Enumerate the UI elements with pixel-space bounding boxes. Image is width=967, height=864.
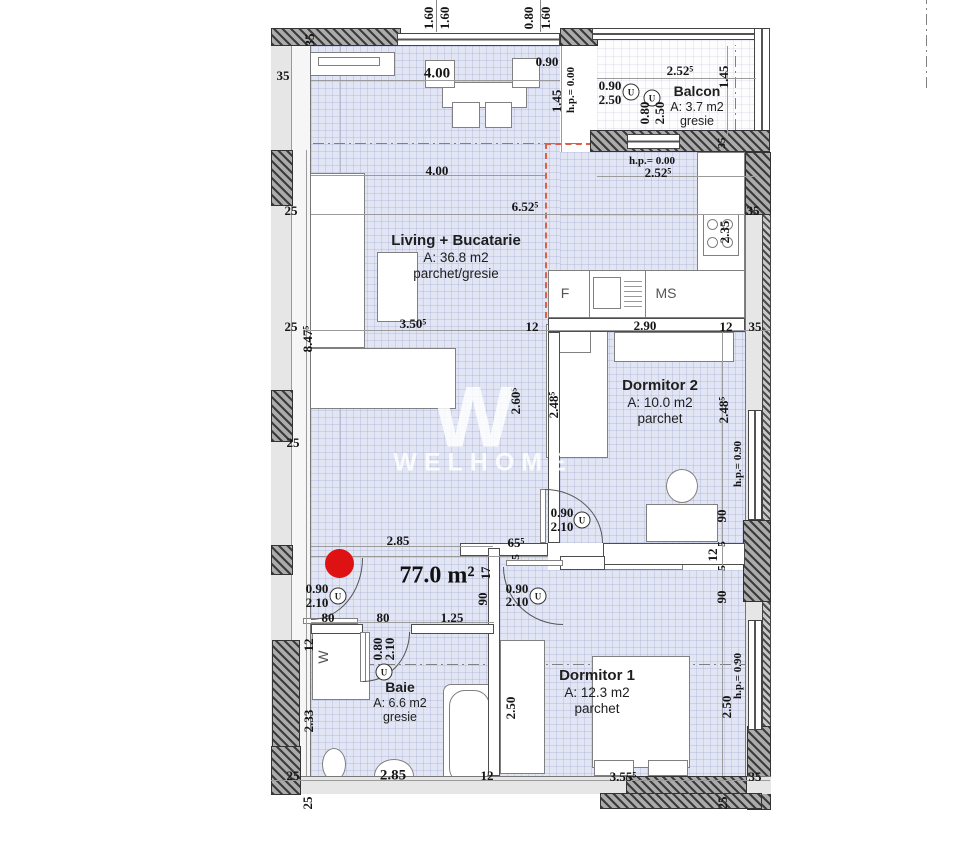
dim-label: 90	[714, 591, 730, 604]
dim-label: 25	[285, 319, 298, 335]
dim-label: 80	[322, 610, 335, 626]
door-type-symbol: U	[574, 512, 591, 529]
room-area: A: 10.0 m2	[622, 395, 698, 411]
drainer	[624, 279, 642, 307]
dormitor1-label: Dormitor 1 A: 12.3 m2 parchet	[559, 667, 635, 717]
dim-label: 12	[526, 319, 539, 335]
wall-segment	[626, 776, 747, 794]
room-name: Balcon	[670, 83, 724, 100]
wall-segment	[271, 150, 293, 206]
dim-label: 17	[478, 567, 494, 580]
dim-label: 90	[475, 593, 491, 606]
room-floor: gresie	[373, 710, 427, 725]
kitchen-counter-bottom	[548, 270, 745, 318]
door-slab-dormitor1	[506, 560, 563, 566]
dim-label: 5	[716, 565, 728, 571]
dim-label: 2.50	[503, 697, 519, 720]
room-name: Dormitor 1	[559, 667, 635, 685]
dim-label: 25	[287, 768, 300, 784]
dim-label: 3.55⁵	[610, 769, 637, 785]
balcony-glazing-right	[754, 28, 770, 138]
room-floor: parchet	[622, 411, 698, 427]
watermark: WELHOME	[393, 449, 573, 478]
balcon-label: Balcon A: 3.7 m2 gresie	[670, 83, 724, 129]
wardrobe	[614, 332, 734, 362]
center-line	[735, 45, 736, 130]
counter-divider	[645, 271, 646, 317]
dim-label: 1.60	[437, 7, 453, 30]
wall-segment	[271, 28, 401, 46]
dim-label: 1.25	[441, 610, 464, 626]
wall-baie-d1	[488, 548, 500, 776]
floor-plan: F MS	[0, 0, 967, 864]
nightstand	[648, 760, 688, 776]
dim-label: 2.48⁵	[716, 397, 732, 424]
room-area: A: 36.8 m2	[391, 250, 521, 266]
dim-label: 5	[716, 541, 728, 547]
dim-label: 2.52⁵	[667, 63, 694, 79]
center-line	[926, 0, 927, 88]
dim-label: 12	[705, 549, 721, 562]
dim-label: 2.10	[506, 594, 529, 610]
chair	[485, 102, 512, 128]
dim-label: 2.50	[599, 92, 622, 108]
dim-label: 2.10	[551, 519, 574, 535]
dim-label: 2.35	[717, 221, 733, 244]
dim-label: 0.80	[637, 102, 653, 125]
door-type-symbol: U	[376, 664, 393, 681]
dim-label: 25	[287, 435, 300, 451]
dim-label: h.p.= 0.90	[732, 441, 744, 487]
dim-label: 4.00	[426, 163, 449, 179]
room-area: A: 6.6 m2	[373, 696, 427, 711]
dim-label: 2.33	[301, 710, 317, 733]
dim-label: 2.10	[382, 638, 398, 661]
room-floor: parchet/gresie	[391, 266, 521, 282]
room-name: Dormitor 2	[622, 377, 698, 395]
dim-label: 5	[510, 554, 522, 560]
dim-label: 90	[714, 510, 730, 523]
door-type-symbol: U	[330, 588, 347, 605]
dim-label: 0.80	[521, 7, 537, 30]
dim-label: 35	[747, 203, 760, 219]
living-label: Living + Bucatarie A: 36.8 m2 parchet/gr…	[391, 232, 521, 282]
dim-label: 2.50	[652, 102, 668, 125]
dim-label: 2.50	[719, 696, 735, 719]
red-dashed-line	[545, 143, 592, 145]
dim-label: 1.60	[538, 7, 554, 30]
wardrobe-label: W	[315, 650, 331, 663]
baie-label: Baie A: 6.6 m2 gresie	[373, 679, 427, 725]
dim-line	[727, 46, 728, 135]
dim-label: 8.47⁵	[300, 326, 316, 353]
dim-label: 3.50⁵	[400, 316, 427, 332]
dim-line	[311, 622, 494, 623]
wall-segment	[600, 793, 762, 809]
total-area-label: 77.0 m²	[399, 563, 474, 590]
dim-label: 25	[715, 797, 731, 810]
desk-chair	[666, 469, 698, 503]
tv	[318, 57, 380, 66]
dim-label: 2.90	[634, 318, 657, 334]
dim-line	[306, 150, 307, 776]
room-area: A: 3.7 m2	[670, 100, 724, 115]
dim-label: h.p.= 0.90	[732, 653, 744, 699]
dim-label: 35	[277, 68, 290, 84]
door-type-symbol: U	[623, 84, 640, 101]
room-floor: gresie	[670, 114, 724, 129]
room-floor: parchet	[559, 701, 635, 717]
dormitor2-label: Dormitor 2 A: 10.0 m2 parchet	[622, 377, 698, 427]
position-marker-dot	[325, 549, 354, 578]
sofa-vertical	[309, 173, 365, 348]
dim-label: 2.85	[387, 533, 410, 549]
room-name: Living + Bucatarie	[391, 232, 521, 250]
dim-label: 35	[302, 34, 318, 47]
red-dashed-line	[545, 143, 547, 318]
dim-label: 1.45	[549, 90, 565, 113]
door-type-symbol: U	[530, 588, 547, 605]
dim-label: 12	[481, 768, 494, 784]
sink	[593, 277, 621, 309]
dim-label: 2.85	[380, 768, 406, 785]
dim-label: 35	[716, 138, 728, 149]
chair	[452, 102, 480, 128]
dim-label: 4.00	[424, 66, 450, 83]
wall-hall-bottom	[311, 624, 363, 634]
balcony-glazing-top	[592, 28, 770, 40]
dim-label: 35	[749, 319, 762, 335]
wall-segment	[590, 130, 770, 152]
window-dormitor1	[748, 620, 762, 730]
dim-label: 12	[720, 319, 733, 335]
dim-label: 0.90	[536, 54, 559, 70]
dim-label: 65⁵	[508, 535, 525, 551]
wall-right-outer	[762, 152, 771, 776]
dim-label: 80	[377, 610, 390, 626]
dim-label: 25	[285, 203, 298, 219]
fridge-label: F	[561, 285, 570, 301]
dim-label: 2.52⁵	[645, 165, 672, 181]
washer-label: MS	[656, 285, 677, 301]
window-kitchen	[627, 134, 680, 149]
dim-label: 35	[749, 769, 762, 785]
room-name: Baie	[373, 679, 427, 696]
wall-segment	[271, 545, 293, 575]
desk	[646, 504, 718, 542]
room-area: A: 12.3 m2	[559, 685, 635, 701]
dim-label: 25	[300, 797, 316, 810]
wall-segment	[743, 520, 771, 602]
dim-label: 6.52⁵	[512, 199, 539, 215]
wall-hall-top	[460, 543, 548, 556]
dim-line	[271, 780, 770, 781]
dim-label: 2.10	[306, 595, 329, 611]
counter-divider	[589, 271, 590, 317]
dim-label: 1.60	[421, 7, 437, 30]
dim-line	[597, 176, 756, 177]
window-living	[397, 33, 560, 46]
dim-label: 2.48⁵	[546, 392, 562, 419]
wall-d1-top	[560, 556, 605, 570]
window-dormitor2	[748, 410, 762, 520]
dim-label: h.p.= 0.00	[565, 67, 577, 113]
